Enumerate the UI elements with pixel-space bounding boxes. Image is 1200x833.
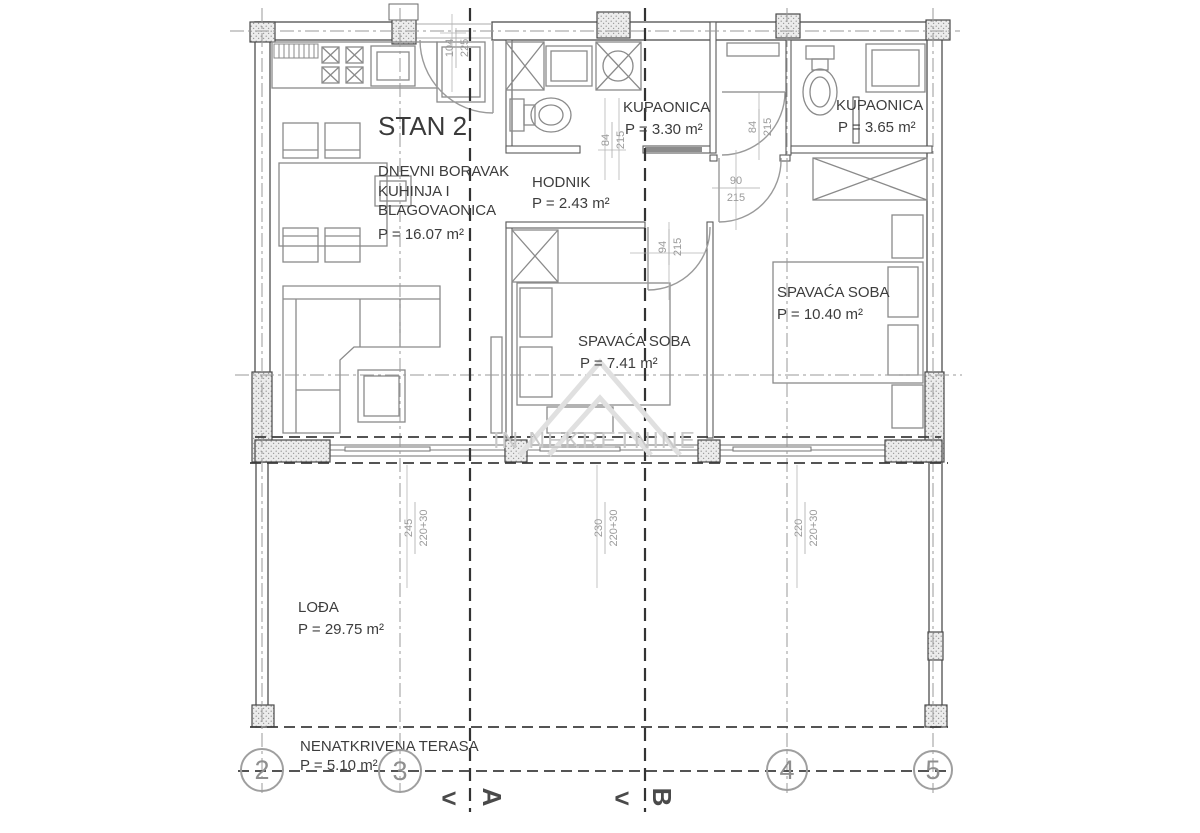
wardrobe-icon — [512, 230, 558, 282]
nightstand-icon — [892, 215, 923, 258]
bedroom2-label: SPAVAĆA SOBA P = 10.40 m² — [777, 284, 890, 323]
dining-table-icon — [279, 163, 387, 246]
sliding-door-panel — [645, 147, 702, 152]
hall-door-arc — [719, 158, 781, 222]
svg-text:KUHINJA I: KUHINJA I — [378, 183, 450, 200]
svg-text:P = 10.40 m²: P = 10.40 m² — [777, 306, 863, 323]
bedroom1-furniture — [512, 230, 670, 433]
svg-text:90: 90 — [730, 175, 742, 187]
svg-text:SPAVAĆA SOBA: SPAVAĆA SOBA — [777, 284, 890, 301]
svg-text:P = 5.10 m²: P = 5.10 m² — [300, 757, 378, 774]
svg-text:84: 84 — [600, 134, 612, 146]
coffee-table-icon — [358, 370, 405, 422]
svg-text:2: 2 — [254, 755, 269, 785]
svg-text:HODNIK: HODNIK — [532, 174, 590, 191]
svg-text:220+30: 220+30 — [608, 509, 620, 546]
floor-plan-page: IN NEKRETNINE STAN 2 DNEVNI BORAVAK KUHI… — [0, 0, 1200, 833]
dim-bathroom2-door: 84 215 — [747, 109, 774, 145]
svg-text:BLAGOVAONICA: BLAGOVAONICA — [378, 202, 496, 219]
svg-text:215: 215 — [615, 131, 627, 149]
svg-text:P = 16.07 m²: P = 16.07 m² — [378, 226, 464, 243]
sofa-icon — [283, 286, 440, 433]
loggia-label: LOĐA P = 29.75 m² — [298, 599, 384, 638]
svg-text:P = 3.65 m²: P = 3.65 m² — [838, 119, 916, 136]
kitchen-sink-icon — [371, 46, 415, 86]
svg-text:SPAVAĆA SOBA: SPAVAĆA SOBA — [578, 333, 691, 350]
sink-icon — [546, 46, 592, 86]
dim-bathroom1-door: 84 215 — [600, 122, 627, 158]
svg-text:230: 230 — [593, 519, 605, 537]
dimension-labels: 104 225 84 215 84 215 90 215 94 215 245 … — [403, 28, 820, 554]
svg-text:215: 215 — [672, 238, 684, 256]
section-a-letter: A — [477, 788, 507, 807]
dim-entrance-door: 104 225 — [444, 28, 471, 68]
svg-text:220+30: 220+30 — [808, 509, 820, 546]
chair-icon — [283, 228, 318, 262]
svg-text:94: 94 — [657, 241, 669, 253]
watermark: IN NEKRETNINE — [493, 362, 697, 455]
grid-bubble-2: 2 — [241, 749, 283, 791]
apartment-title: STAN 2 — [378, 111, 467, 141]
chair-icon — [283, 123, 318, 158]
tv-board-icon — [491, 337, 502, 433]
hallway-label: HODNIK P = 2.43 m² — [532, 174, 610, 212]
section-a-arrow-icon: < — [441, 783, 456, 813]
section-markers: < A < B — [441, 783, 677, 813]
kitchen-counter-icon — [272, 42, 437, 88]
dim-bedroom1-door: 94 215 — [657, 229, 684, 265]
interior-walls — [506, 22, 932, 438]
bathroom1-fixtures — [506, 42, 641, 132]
projection-dashed-lines — [238, 437, 952, 771]
svg-text:215: 215 — [762, 118, 774, 136]
watermark-text: IN NEKRETNINE — [493, 427, 697, 453]
svg-text:104: 104 — [444, 39, 456, 57]
stove-burners-icon — [322, 47, 363, 83]
toilet-icon — [803, 46, 837, 115]
pillow-icon — [520, 347, 552, 397]
toilet-icon — [510, 98, 571, 132]
floor-plan-svg: IN NEKRETNINE STAN 2 DNEVNI BORAVAK KUHI… — [0, 0, 1200, 833]
dimension-lines — [407, 14, 797, 588]
svg-text:P = 3.30 m²: P = 3.30 m² — [625, 121, 703, 138]
wall-stub — [389, 4, 418, 20]
bedroom1-door-arc — [648, 227, 710, 290]
svg-text:220: 220 — [793, 519, 805, 537]
terrace-label: NENATKRIVENA TERASA P = 5.10 m² — [300, 738, 479, 774]
svg-text:3: 3 — [392, 756, 407, 786]
bedroom1-label: SPAVAĆA SOBA P = 7.41 m² — [578, 333, 691, 372]
svg-text:A: A — [477, 788, 507, 807]
chair-icon — [325, 228, 360, 262]
svg-text:220+30: 220+30 — [418, 509, 430, 546]
shelf-icon — [727, 43, 779, 56]
pillow-icon — [888, 267, 918, 317]
svg-text:84: 84 — [747, 121, 759, 133]
grid-bubble-5: 5 — [914, 751, 952, 789]
svg-text:225: 225 — [459, 39, 471, 57]
svg-text:LOĐA: LOĐA — [298, 599, 339, 616]
svg-text:P = 7.41 m²: P = 7.41 m² — [580, 355, 658, 372]
svg-text:5: 5 — [925, 755, 940, 785]
bathroom2-label: KUPAONICA P = 3.65 m² — [836, 97, 923, 136]
pillow-icon — [888, 325, 918, 375]
section-b-letter: B — [647, 788, 677, 807]
bathroom1-label: KUPAONICA P = 3.30 m² — [623, 99, 710, 138]
vanity-sink-icon — [866, 44, 925, 92]
svg-text:DNEVNI BORAVAK: DNEVNI BORAVAK — [378, 163, 509, 180]
chair-icon — [325, 123, 360, 158]
svg-text:P = 29.75 m²: P = 29.75 m² — [298, 621, 384, 638]
pillow-icon — [520, 288, 552, 337]
grid-bubble-4: 4 — [767, 750, 807, 790]
svg-text:KUPAONICA: KUPAONICA — [623, 99, 710, 116]
nightstand-icon — [892, 385, 923, 428]
kitchen-hatch-icon — [274, 44, 318, 58]
svg-text:215: 215 — [727, 192, 745, 204]
section-b-arrow-icon: < — [614, 783, 629, 813]
svg-text:P = 2.43 m²: P = 2.43 m² — [532, 195, 610, 212]
svg-text:B: B — [647, 788, 677, 807]
washing-machine-icon — [596, 42, 641, 90]
living-room-label: DNEVNI BORAVAK KUHINJA I BLAGOVAONICA P … — [378, 163, 509, 243]
wardrobe-icon — [813, 158, 927, 200]
svg-text:KUPAONICA: KUPAONICA — [836, 97, 923, 114]
svg-text:245: 245 — [403, 519, 415, 537]
svg-text:4: 4 — [779, 755, 794, 785]
